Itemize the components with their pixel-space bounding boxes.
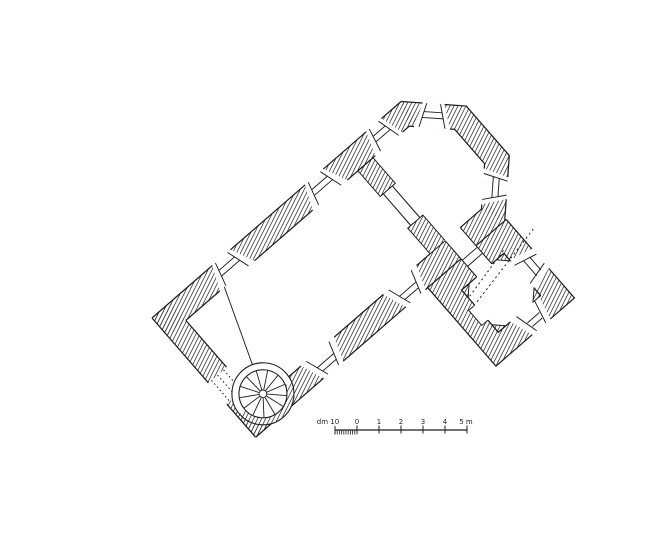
scale-label: 5 m — [459, 418, 473, 426]
spiral-staircase — [219, 350, 306, 437]
scale-bar: dm 10012345 m — [317, 418, 473, 435]
scale-label: dm 10 — [317, 418, 339, 426]
floor-plan-page: dm 10012345 m — [0, 0, 670, 550]
church-plan — [151, 71, 608, 517]
scale-label: 1 — [377, 418, 381, 426]
chancel-arch-lines — [383, 186, 420, 226]
scale-label: 4 — [443, 418, 448, 426]
scale-label: 3 — [421, 418, 425, 426]
scale-label: 2 — [399, 418, 403, 426]
scale-label: 0 — [355, 418, 359, 426]
floor-plan-drawing: dm 10012345 m — [0, 0, 670, 550]
